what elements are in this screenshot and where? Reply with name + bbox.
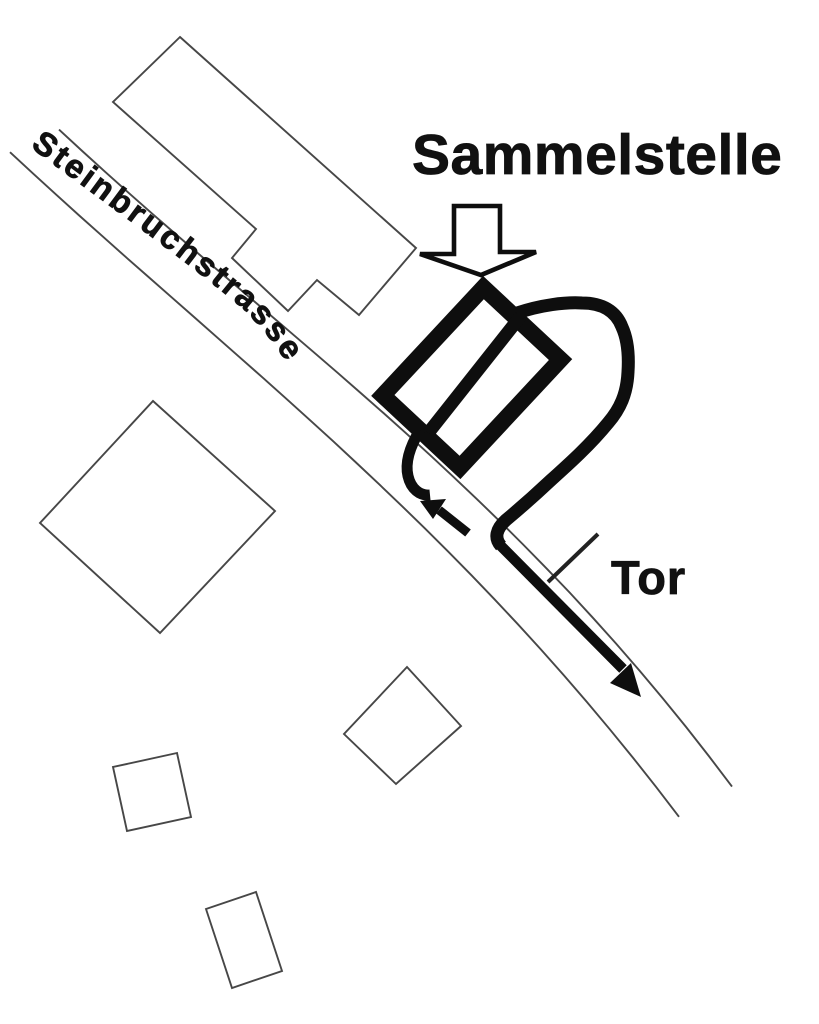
- svg-text:Sammelstelle: Sammelstelle: [412, 123, 782, 187]
- svg-text:Tor: Tor: [611, 551, 686, 604]
